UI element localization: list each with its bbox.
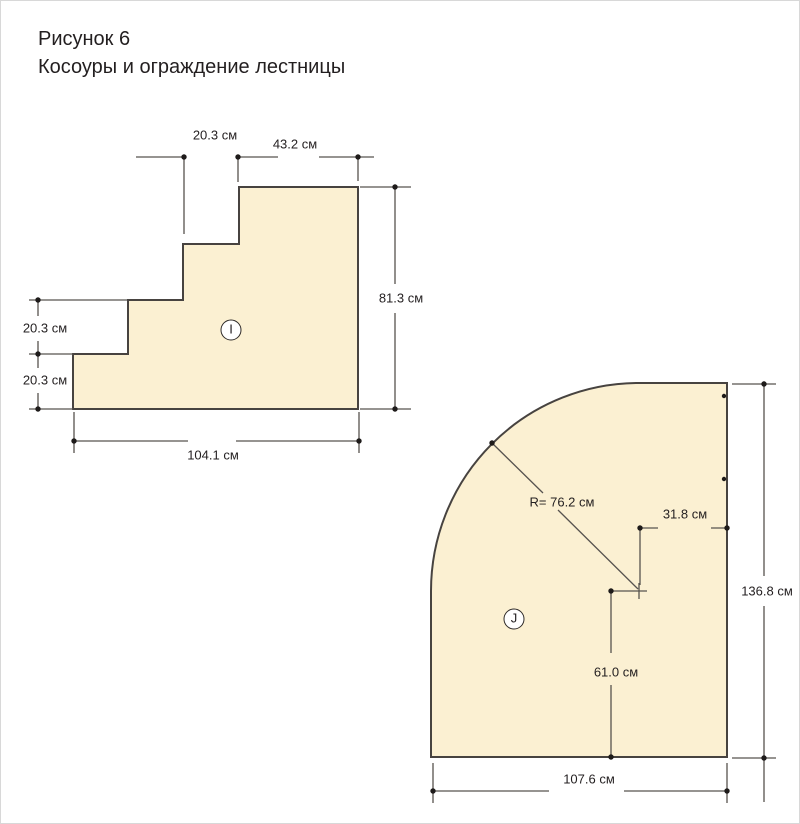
dim-dot (356, 438, 361, 443)
dim-dot (392, 184, 397, 189)
dim-label-radius: R= 76.2 см (530, 495, 595, 510)
dim-dot (724, 525, 729, 530)
dim-dot (35, 297, 40, 302)
dim-label-bottom-width-j: 107.6 см (563, 772, 615, 787)
dim-dot (181, 154, 186, 159)
rounded-part-shape (431, 383, 727, 757)
dim-label-left-rise-upper: 20.3 см (23, 321, 67, 336)
dim-label-right-height-j: 136.8 см (741, 584, 793, 599)
figure-page: Рисунок 6 Косоуры и ограждение лестницы (0, 0, 800, 824)
dim-label-center-to-edge: 31.8 см (663, 507, 707, 522)
edge-marker-dot (722, 477, 726, 481)
dim-label-left-rise-lower: 20.3 см (23, 373, 67, 388)
part-badge-i: I (221, 320, 242, 341)
dim-label-bottom-width: 104.1 см (187, 448, 239, 463)
dim-dot (355, 154, 360, 159)
stair-parts-diagram (1, 1, 800, 824)
dim-dot (35, 351, 40, 356)
dim-dot (608, 588, 613, 593)
dim-dot (235, 154, 240, 159)
dim-label-center-to-bottom: 61.0 см (594, 665, 638, 680)
dim-dot (71, 438, 76, 443)
dim-dot (761, 755, 766, 760)
dim-dot (761, 381, 766, 386)
dim-dot (637, 525, 642, 530)
dim-label-top-step-run: 20.3 см (193, 128, 237, 143)
edge-marker-dot (722, 394, 726, 398)
dim-dot (35, 406, 40, 411)
dim-label-top-width: 43.2 см (273, 137, 317, 152)
dim-label-right-height: 81.3 см (379, 291, 423, 306)
dim-dot (430, 788, 435, 793)
stringer-part-shape (73, 187, 358, 409)
dim-dot (724, 788, 729, 793)
dim-dot (392, 406, 397, 411)
dim-dot (489, 440, 494, 445)
dim-dot (608, 754, 613, 759)
part-badge-j: J (504, 609, 525, 630)
